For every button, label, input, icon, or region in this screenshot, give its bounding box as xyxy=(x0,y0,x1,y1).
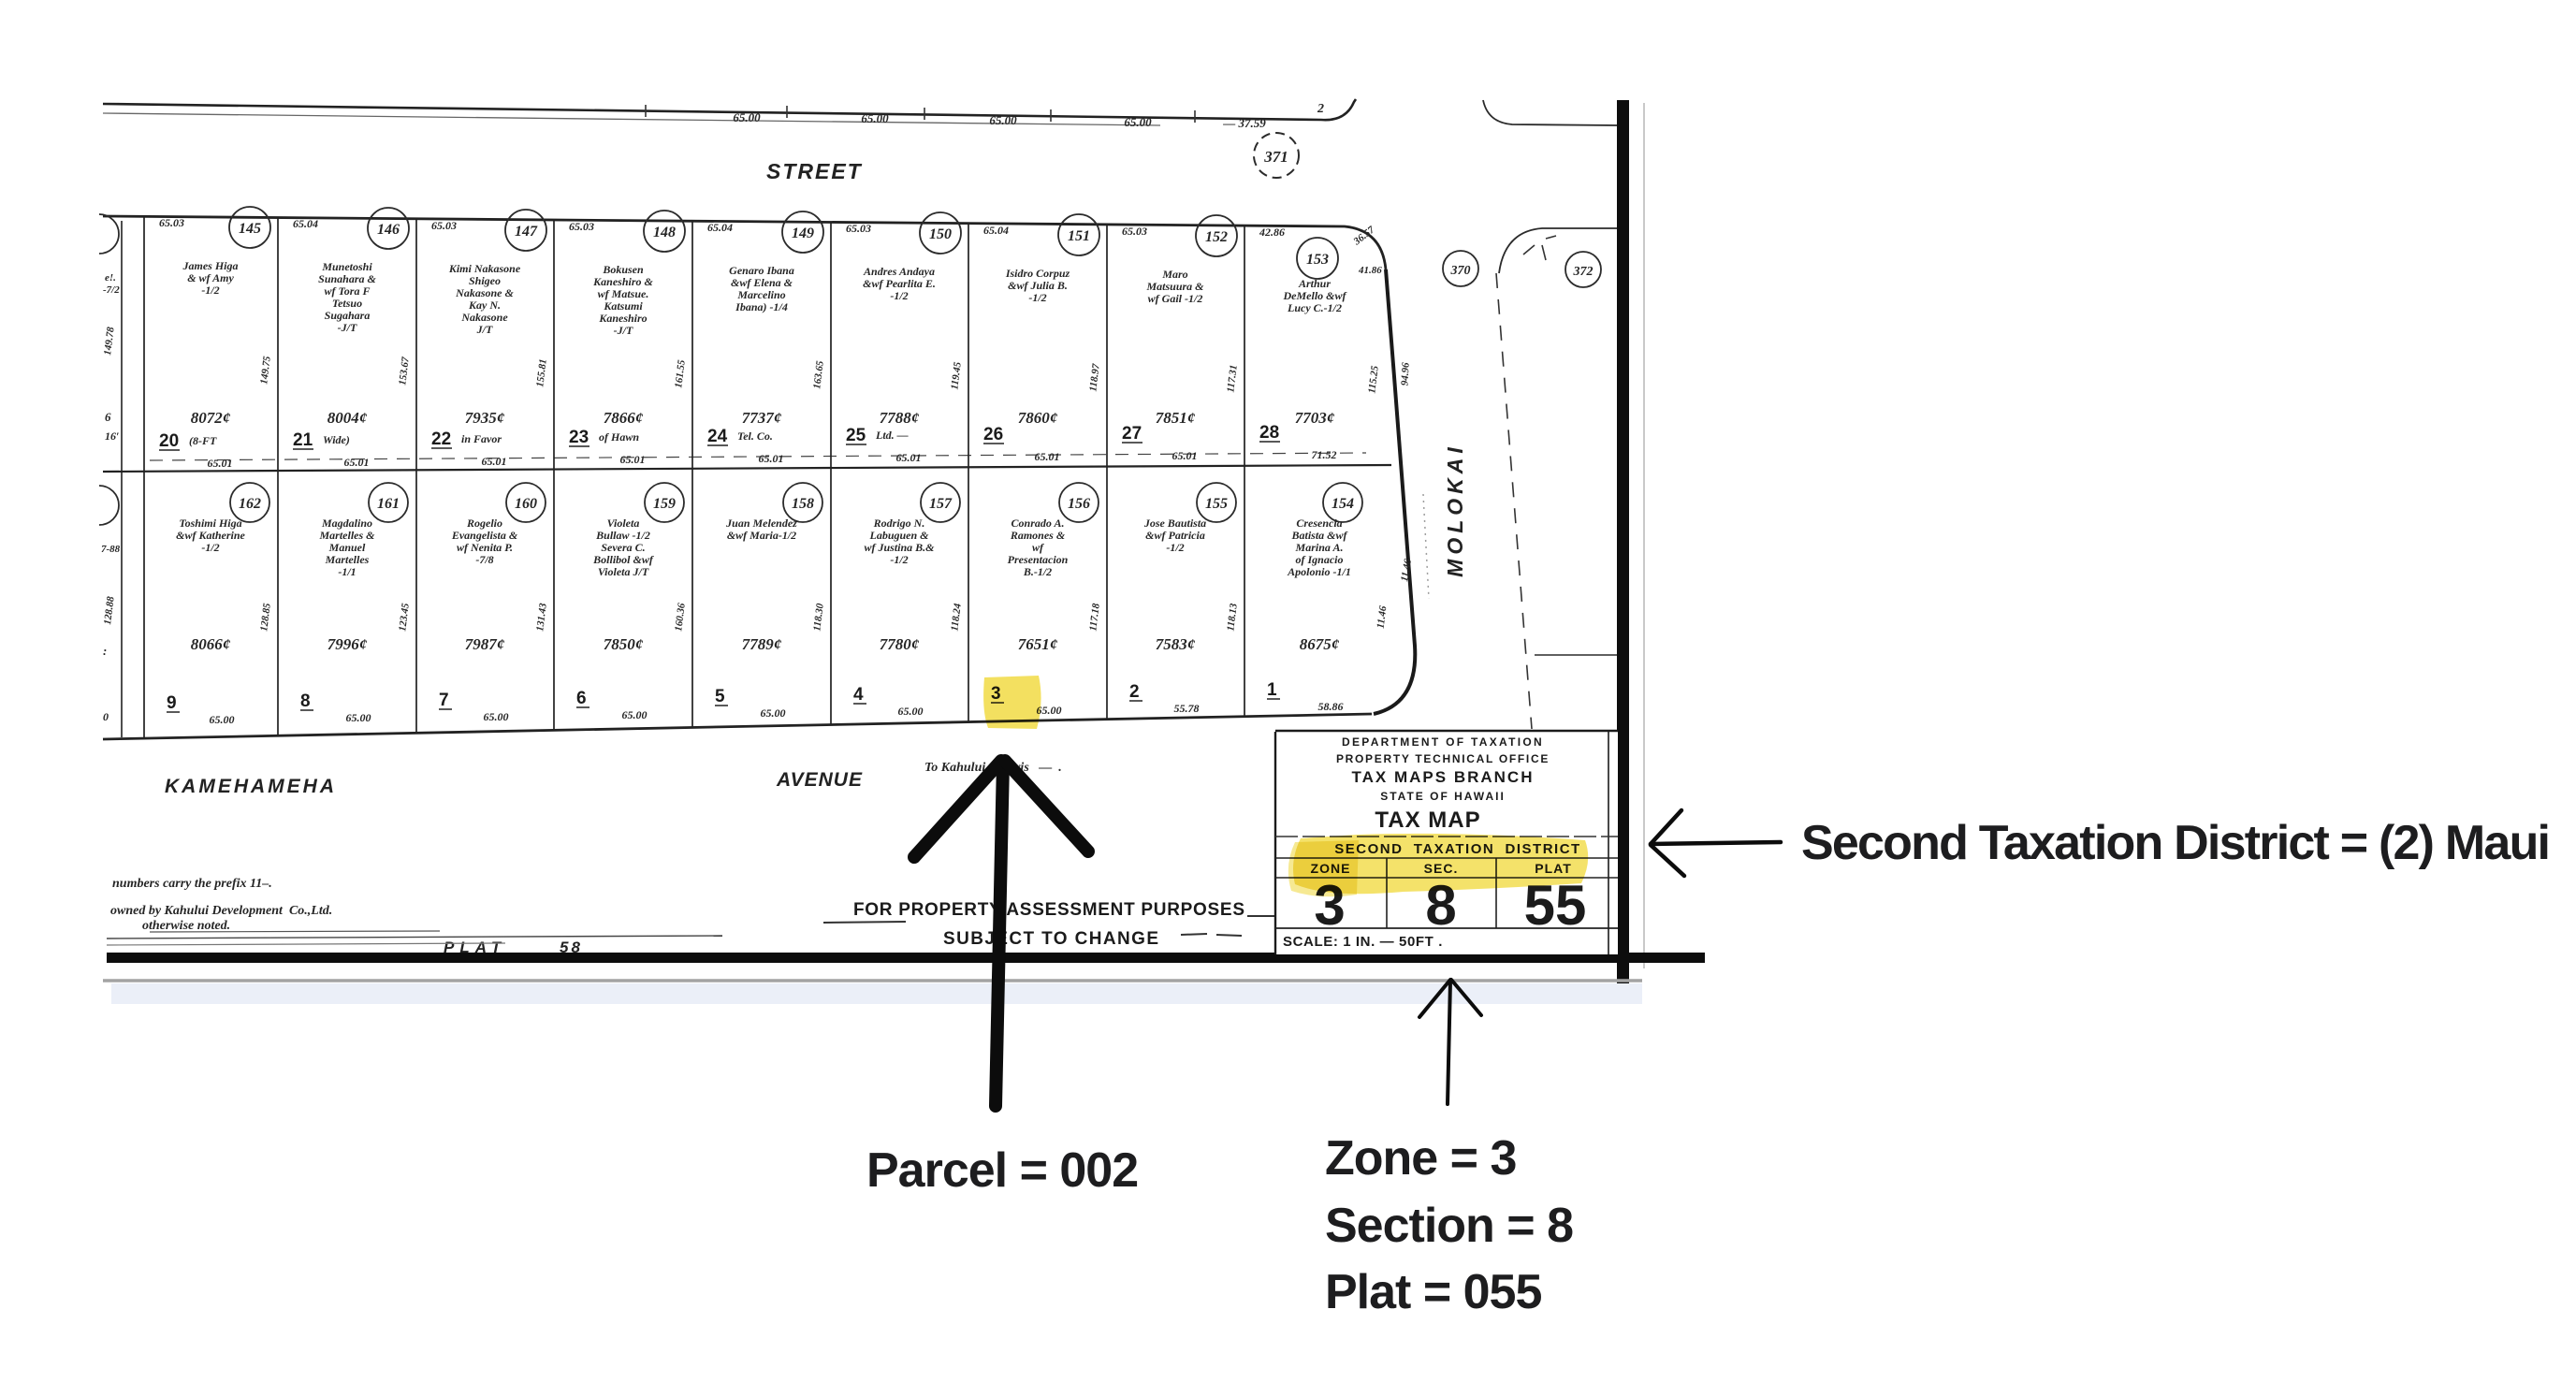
svg-text:9: 9 xyxy=(167,693,177,713)
svg-text:(8-FT: (8-FT xyxy=(189,434,217,447)
svg-text:in Favor: in Favor xyxy=(461,432,502,445)
svg-text:151: 151 xyxy=(1068,228,1090,244)
svg-text:8: 8 xyxy=(300,691,311,711)
svg-text:55.78: 55.78 xyxy=(1174,702,1200,715)
svg-text:Plat = 055: Plat = 055 xyxy=(1325,1265,1541,1319)
svg-text:65.00: 65.00 xyxy=(210,713,235,726)
svg-text:8675¢: 8675¢ xyxy=(1300,635,1340,653)
svg-text:28: 28 xyxy=(1259,423,1279,443)
svg-text:27: 27 xyxy=(1122,424,1142,444)
svg-text:8004¢: 8004¢ xyxy=(327,409,368,427)
svg-text:DEPARTMENT OF TAXATION: DEPARTMENT OF TAXATION xyxy=(1342,735,1544,749)
svg-text:65.03: 65.03 xyxy=(1122,225,1147,238)
svg-text:Toshimi Higa: Toshimi Higa xyxy=(179,517,241,530)
svg-text:Lucy C.-1/2: Lucy C.-1/2 xyxy=(1287,301,1342,314)
svg-text:Nakasone &: Nakasone & xyxy=(455,286,514,299)
svg-text:94.96: 94.96 xyxy=(1399,362,1411,386)
svg-text:wf Tora F: wf Tora F xyxy=(325,284,371,298)
svg-text:Genaro Ibana: Genaro Ibana xyxy=(729,264,794,277)
svg-text:Tel. Co.: Tel. Co. xyxy=(737,429,773,443)
svg-text:Severa C.: Severa C. xyxy=(601,541,645,554)
svg-text:5: 5 xyxy=(715,687,725,706)
svg-text:7851¢: 7851¢ xyxy=(1156,409,1196,427)
svg-text:7788¢: 7788¢ xyxy=(880,409,920,427)
svg-text:FOR PROPERTY ASSESSMENT PURPOS: FOR PROPERTY ASSESSMENT PURPOSES xyxy=(853,900,1244,920)
svg-text:otherwise noted.: otherwise noted. xyxy=(142,919,230,933)
svg-text:& wf Amy: & wf Amy xyxy=(187,271,234,284)
svg-text:Second Taxation District = (2): Second Taxation District = (2) Maui xyxy=(1801,816,2550,870)
svg-text:-1/2: -1/2 xyxy=(890,289,908,302)
svg-text:8072¢: 8072¢ xyxy=(191,409,231,427)
svg-text:Evangelista &: Evangelista & xyxy=(451,529,518,542)
svg-text:&wf Pearlita E.: &wf Pearlita E. xyxy=(863,277,936,290)
svg-text:146: 146 xyxy=(377,222,400,238)
svg-text:wf Gail -1/2: wf Gail -1/2 xyxy=(1148,292,1203,305)
svg-text:Wide): Wide) xyxy=(323,433,350,446)
svg-text:Marcelino: Marcelino xyxy=(736,288,785,301)
svg-text:wf Nenita P.: wf Nenita P. xyxy=(457,541,513,554)
svg-text:wf Justina B.&: wf Justina B.& xyxy=(864,541,935,554)
svg-text:158: 158 xyxy=(792,496,814,512)
svg-text:SCALE: 1 IN. — 50FT .: SCALE: 1 IN. — 50FT . xyxy=(1283,934,1443,950)
svg-text:Shigeo: Shigeo xyxy=(469,274,501,287)
svg-text:— 37.59: — 37.59 xyxy=(1222,116,1266,130)
svg-text:Martelles &: Martelles & xyxy=(319,529,376,542)
svg-text:1: 1 xyxy=(1267,680,1277,700)
svg-text:7935¢: 7935¢ xyxy=(465,409,505,427)
svg-text:159: 159 xyxy=(653,496,676,512)
svg-text:wf Matsue.: wf Matsue. xyxy=(598,287,649,300)
svg-text:154: 154 xyxy=(1332,496,1354,512)
svg-text:7860¢: 7860¢ xyxy=(1018,409,1058,427)
svg-text:65.01: 65.01 xyxy=(208,457,233,470)
svg-text:7583¢: 7583¢ xyxy=(1156,635,1196,653)
svg-text:156: 156 xyxy=(1068,496,1090,512)
svg-text:65.01: 65.01 xyxy=(482,455,507,468)
svg-text:-1/2: -1/2 xyxy=(1028,291,1046,304)
svg-text:65.04: 65.04 xyxy=(293,217,318,230)
svg-text:148: 148 xyxy=(653,225,676,240)
svg-text:Zone = 3: Zone = 3 xyxy=(1325,1131,1516,1186)
svg-text:Martelles: Martelles xyxy=(325,553,370,566)
svg-text:-J/T: -J/T xyxy=(614,324,633,337)
svg-text:DeMello &wf: DeMello &wf xyxy=(1283,289,1347,302)
svg-text:157: 157 xyxy=(929,496,953,512)
svg-text:-7/2: -7/2 xyxy=(103,284,120,296)
svg-text:372: 372 xyxy=(1573,265,1594,279)
svg-text:Jose Bautista: Jose Bautista xyxy=(1143,517,1206,530)
svg-text:65.04: 65.04 xyxy=(707,221,733,234)
svg-text:&wf Katherine: &wf Katherine xyxy=(176,529,245,542)
svg-text:65.01: 65.01 xyxy=(1172,449,1198,462)
svg-text:0: 0 xyxy=(103,710,109,723)
svg-text:STREET: STREET xyxy=(766,159,863,183)
svg-text:7987¢: 7987¢ xyxy=(465,635,505,653)
svg-text:65.00: 65.00 xyxy=(484,710,509,723)
svg-text:6: 6 xyxy=(105,410,111,424)
svg-text:Sunahara &: Sunahara & xyxy=(318,272,376,285)
svg-text:-1/2: -1/2 xyxy=(1166,541,1184,554)
svg-text:26: 26 xyxy=(983,425,1003,444)
svg-text:8066¢: 8066¢ xyxy=(191,635,231,653)
svg-text:-1/2: -1/2 xyxy=(890,553,908,566)
svg-text:STATE OF HAWAII: STATE OF HAWAII xyxy=(1380,790,1506,803)
svg-text:Violeta: Violeta xyxy=(607,517,640,530)
svg-text:Arthur: Arthur xyxy=(1298,277,1331,290)
svg-text:Bollibol &wf: Bollibol &wf xyxy=(592,553,654,566)
svg-text:Section = 8: Section = 8 xyxy=(1325,1199,1573,1253)
svg-text:Rodrigo N.: Rodrigo N. xyxy=(873,517,925,530)
svg-text:152: 152 xyxy=(1205,229,1228,245)
svg-text:42.86: 42.86 xyxy=(1259,226,1285,239)
svg-text:6: 6 xyxy=(576,689,587,708)
svg-text:7996¢: 7996¢ xyxy=(327,635,368,653)
svg-text:24: 24 xyxy=(707,427,728,446)
svg-text:58.86: 58.86 xyxy=(1318,700,1344,713)
svg-text:65.00: 65.00 xyxy=(346,711,371,724)
svg-text:numbers carry the prefix 11–.: numbers carry the prefix 11–. xyxy=(112,877,272,891)
svg-text:Violeta J/T: Violeta J/T xyxy=(598,565,649,578)
svg-text:SUBJECT TO CHANGE: SUBJECT TO CHANGE xyxy=(943,929,1158,949)
svg-text:371: 371 xyxy=(1263,148,1288,166)
svg-text:150: 150 xyxy=(929,226,952,242)
svg-text:-7/8: -7/8 xyxy=(475,553,493,566)
svg-text:65.00: 65.00 xyxy=(761,706,786,720)
svg-text:65.00: 65.00 xyxy=(989,113,1017,127)
svg-text:65.03: 65.03 xyxy=(846,222,871,235)
svg-text:-1/1: -1/1 xyxy=(338,565,356,578)
svg-text:65.00: 65.00 xyxy=(861,111,889,125)
svg-text:370: 370 xyxy=(1450,264,1471,278)
svg-text:of Ignacio: of Ignacio xyxy=(1296,553,1344,566)
svg-text:owned by Kahului Development: owned by Kahului Development Co.,Ltd. xyxy=(110,904,332,918)
svg-text:147: 147 xyxy=(515,224,538,240)
svg-text:&wf Elena &: &wf Elena & xyxy=(731,276,793,289)
svg-text:Cresencia: Cresencia xyxy=(1296,517,1342,530)
svg-text:22: 22 xyxy=(431,429,451,449)
svg-text:16′: 16′ xyxy=(105,429,119,443)
svg-text:TAX MAPS BRANCH: TAX MAPS BRANCH xyxy=(1352,768,1535,786)
svg-text:Rogelio: Rogelio xyxy=(466,517,502,530)
svg-text:Maro: Maro xyxy=(1161,268,1187,281)
svg-text:Kay N.: Kay N. xyxy=(468,298,501,312)
svg-text:21: 21 xyxy=(293,430,313,450)
svg-text:7: 7 xyxy=(439,691,449,710)
svg-text:Kaneshiro: Kaneshiro xyxy=(598,312,647,325)
svg-text:7850¢: 7850¢ xyxy=(604,635,644,653)
svg-text:7737¢: 7737¢ xyxy=(742,409,782,427)
svg-text:&wf Julia B.: &wf Julia B. xyxy=(1008,279,1068,292)
svg-text:65.03: 65.03 xyxy=(159,216,184,229)
svg-text:145: 145 xyxy=(239,221,261,237)
svg-text:Munetoshi: Munetoshi xyxy=(321,260,372,273)
svg-text:25: 25 xyxy=(846,426,866,445)
svg-text:Isidro Corpuz: Isidro Corpuz xyxy=(1005,267,1070,280)
svg-text:4: 4 xyxy=(853,685,864,705)
svg-text:Bokusen: Bokusen xyxy=(602,263,644,276)
svg-text:20: 20 xyxy=(159,431,179,451)
svg-text:-1/2: -1/2 xyxy=(201,541,219,554)
svg-text:Juan Melendez: Juan Melendez xyxy=(725,517,797,530)
svg-text:2: 2 xyxy=(1317,102,1324,116)
svg-text:Marina A.: Marina A. xyxy=(1295,541,1344,554)
svg-text:Ltd. —: Ltd. — xyxy=(875,429,909,442)
svg-text:160: 160 xyxy=(515,496,537,512)
svg-text:Sugahara: Sugahara xyxy=(325,309,371,322)
svg-text:PROPERTY TECHNICAL OFFICE: PROPERTY TECHNICAL OFFICE xyxy=(1336,752,1550,765)
svg-text:2: 2 xyxy=(1129,682,1140,702)
svg-text:Kaneshiro &: Kaneshiro & xyxy=(592,275,653,288)
svg-text:71.52: 71.52 xyxy=(1312,448,1337,461)
svg-text:65.00: 65.00 xyxy=(622,708,648,721)
svg-text:Manuel: Manuel xyxy=(328,541,366,554)
svg-text:161: 161 xyxy=(377,496,400,512)
svg-text:65.00: 65.00 xyxy=(1124,115,1152,129)
svg-text:7703¢: 7703¢ xyxy=(1295,409,1335,427)
svg-text:&wf Maria-1/2: &wf Maria-1/2 xyxy=(727,529,796,542)
svg-text:149: 149 xyxy=(792,226,814,241)
svg-text:of Hawn: of Hawn xyxy=(599,430,639,444)
svg-text:65.01: 65.01 xyxy=(759,452,784,465)
svg-text:65.01: 65.01 xyxy=(1035,450,1060,463)
svg-text:Nakasone: Nakasone xyxy=(460,311,508,324)
svg-text:7789¢: 7789¢ xyxy=(742,635,782,653)
svg-text:23: 23 xyxy=(569,428,589,447)
svg-text:65.00: 65.00 xyxy=(898,705,924,718)
svg-text:-1/2: -1/2 xyxy=(201,284,219,297)
svg-text:65.01: 65.01 xyxy=(620,453,646,466)
svg-text:65.01: 65.01 xyxy=(344,456,370,469)
svg-text:7866¢: 7866¢ xyxy=(604,409,644,427)
svg-text:7-88: 7-88 xyxy=(101,544,121,555)
svg-text:Presentacion: Presentacion xyxy=(1008,553,1069,566)
svg-text:65.03: 65.03 xyxy=(431,219,457,232)
svg-text:&wf Patricia: &wf Patricia xyxy=(1145,529,1205,542)
svg-text:AVENUE: AVENUE xyxy=(776,769,863,791)
svg-text:65.03: 65.03 xyxy=(569,220,594,233)
svg-text:Ramones &: Ramones & xyxy=(1010,529,1066,542)
svg-text:153: 153 xyxy=(1306,252,1329,268)
svg-text:James Higa: James Higa xyxy=(182,259,239,272)
svg-text:B.-1/2: B.-1/2 xyxy=(1023,565,1052,578)
svg-text:Batista &wf: Batista &wf xyxy=(1290,529,1347,542)
svg-text::: : xyxy=(103,644,107,658)
svg-text:65.00: 65.00 xyxy=(733,110,761,124)
svg-text:Ibana) -1/4: Ibana) -1/4 xyxy=(735,300,788,313)
svg-text:MOLOKAI: MOLOKAI xyxy=(1443,443,1467,577)
svg-text:Magdalino: Magdalino xyxy=(321,517,372,530)
svg-text:Apolonio -1/1: Apolonio -1/1 xyxy=(1287,565,1351,578)
svg-text:Katsumi: Katsumi xyxy=(603,299,643,313)
svg-text:KAMEHAMEHA: KAMEHAMEHA xyxy=(165,776,337,797)
svg-text:7780¢: 7780¢ xyxy=(880,635,920,653)
svg-text:Andres Andaya: Andres Andaya xyxy=(863,265,935,278)
svg-text:J/T: J/T xyxy=(476,323,493,336)
svg-text:Parcel = 002: Parcel = 002 xyxy=(866,1143,1138,1198)
svg-text:Kimi Nakasone: Kimi Nakasone xyxy=(448,262,521,275)
svg-text:162: 162 xyxy=(239,496,261,512)
svg-text:wf: wf xyxy=(1032,541,1044,554)
svg-text:Matsuura &: Matsuura & xyxy=(1145,280,1204,293)
svg-text:Bullaw -1/2: Bullaw -1/2 xyxy=(595,529,650,542)
svg-text:e!.: e!. xyxy=(105,272,116,284)
svg-text:-J/T: -J/T xyxy=(338,321,357,334)
svg-text:TAX MAP: TAX MAP xyxy=(1375,808,1480,833)
svg-text:7651¢: 7651¢ xyxy=(1018,635,1058,653)
svg-text:41.86: 41.86 xyxy=(1358,265,1382,276)
svg-text:65.01: 65.01 xyxy=(896,451,922,464)
svg-text:Tetsuo: Tetsuo xyxy=(332,297,362,310)
svg-text:Labuguen &: Labuguen & xyxy=(868,529,929,542)
svg-text:65.04: 65.04 xyxy=(983,224,1009,237)
svg-text:155: 155 xyxy=(1205,496,1228,512)
svg-text:Conrado A.: Conrado A. xyxy=(1011,517,1065,530)
